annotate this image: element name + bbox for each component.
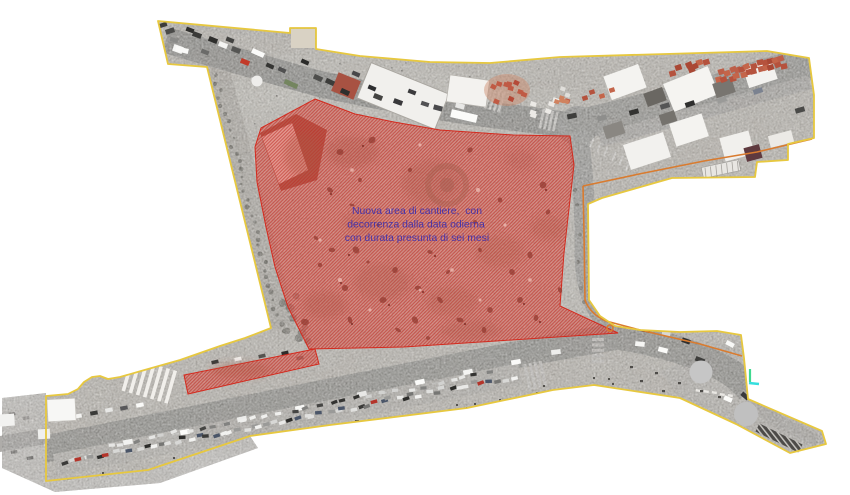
svg-text:con durata presunta di sei mes: con durata presunta di sei mesi	[345, 233, 489, 244]
svg-text:Nuova area di cantiere, con: Nuova area di cantiere, con	[352, 206, 482, 217]
svg-text:decorrenza dalla data odierna: decorrenza dalla data odierna	[347, 220, 485, 231]
